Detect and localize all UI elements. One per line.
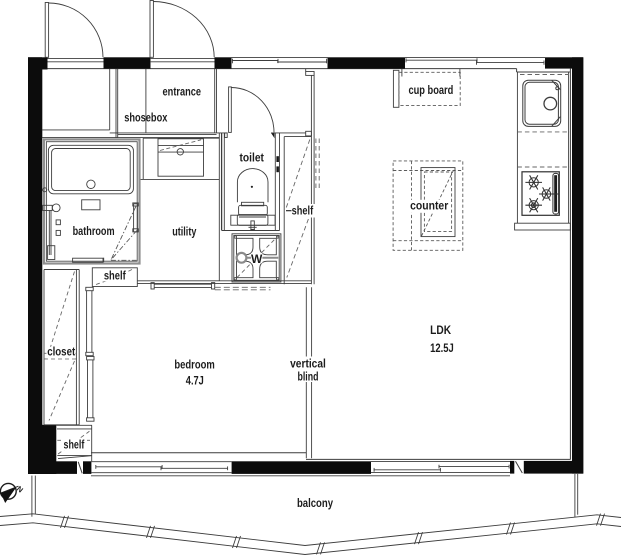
svg-text:shelf: shelf: [64, 437, 86, 451]
svg-text:shosebox: shosebox: [124, 111, 167, 125]
svg-text:bedroom: bedroom: [174, 358, 214, 372]
svg-text:W: W: [251, 252, 263, 266]
svg-text:LDK: LDK: [430, 323, 451, 337]
svg-text:shelf: shelf: [292, 204, 314, 218]
svg-text:toilet: toilet: [239, 151, 264, 165]
svg-text:vertical: vertical: [290, 356, 326, 370]
svg-text:counter: counter: [410, 199, 448, 213]
svg-text:balcony: balcony: [297, 496, 333, 510]
svg-text:blind: blind: [298, 369, 319, 383]
svg-text:cup board: cup board: [408, 83, 453, 97]
svg-text:12.5J: 12.5J: [430, 341, 454, 355]
svg-text:closet: closet: [47, 345, 75, 359]
svg-text:bathroom: bathroom: [73, 224, 115, 238]
svg-text:utility: utility: [172, 225, 196, 239]
svg-text:shelf: shelf: [104, 268, 127, 282]
svg-text:4.7J: 4.7J: [186, 374, 204, 388]
svg-text:entrance: entrance: [163, 84, 202, 98]
